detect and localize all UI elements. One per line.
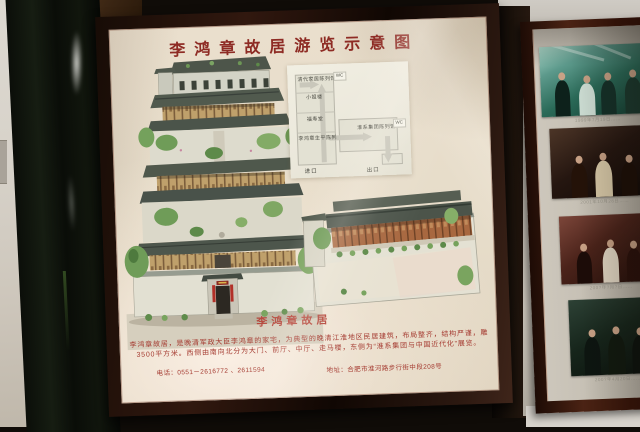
east-courtyard-illustration — [300, 175, 482, 311]
wc-badge: WC — [393, 118, 406, 127]
exit-label: 出口 — [366, 165, 379, 173]
photo-3 — [559, 213, 640, 285]
address-label: 地址：合肥市淮河路步行街中段208号 — [326, 360, 442, 374]
route-map-inset: 清代家居陈列馆 小姐楼 福寿堂 李鸿章生平陈列 淮系集团陈列馆 WC WC 进口… — [287, 61, 412, 178]
route-stop-label: 福寿堂 — [307, 117, 324, 123]
photo-1 — [539, 43, 640, 117]
photo-2 — [549, 125, 640, 199]
wall-frame-edge — [0, 140, 7, 184]
person-figure — [595, 160, 613, 197]
tour-map-poster: 李鸿章故居游览示意图 — [109, 17, 500, 404]
wc-badge: WC — [333, 71, 346, 80]
photo-display-frame: 1999年7月19日…… 2001年10月28日…… 200?年?月?日…… 2… — [520, 16, 640, 414]
entrance-label: 进口 — [304, 167, 317, 175]
poster-frame: 李鸿章故居游览示意图 — [95, 3, 513, 417]
photo-matte: 1999年7月19日…… 2001年10月28日…… 200?年?月?日…… 2… — [532, 24, 640, 402]
person-figure — [608, 334, 627, 375]
person-figure — [602, 247, 619, 283]
photo-4 — [568, 297, 640, 377]
phone-label: 电话：0551－2616772 、2611594 — [156, 363, 265, 377]
route-stop-label: 小姐楼 — [306, 95, 323, 101]
person-figure — [626, 248, 640, 282]
person-figure — [584, 337, 602, 376]
person-figure — [576, 251, 592, 284]
pillar-reflection — [63, 271, 70, 351]
person-figure — [571, 163, 588, 198]
pillar-highlight — [66, 174, 77, 232]
person-figure — [554, 80, 570, 117]
photo-caption-4: 200?年4月20日…… — [571, 374, 640, 384]
person-figure — [624, 77, 640, 114]
person-figure — [621, 162, 638, 196]
person-figure — [600, 80, 616, 115]
person-figure — [632, 335, 640, 374]
person-figure — [579, 83, 596, 116]
pillar-highlight — [70, 30, 82, 97]
